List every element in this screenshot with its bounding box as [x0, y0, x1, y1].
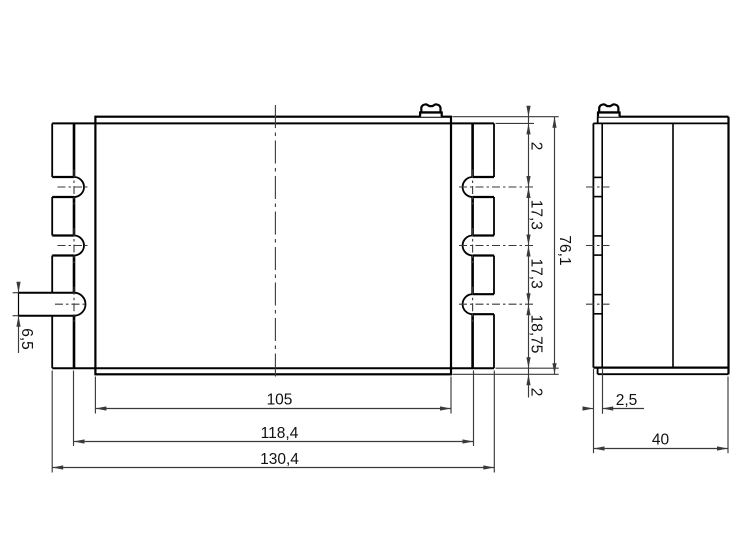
svg-text:118,4: 118,4	[261, 425, 299, 442]
svg-text:2: 2	[528, 388, 545, 397]
svg-text:18,75: 18,75	[528, 315, 545, 354]
svg-text:40: 40	[652, 431, 670, 448]
svg-text:130,4: 130,4	[260, 451, 299, 468]
svg-text:76,1: 76,1	[556, 235, 573, 265]
svg-text:17,3: 17,3	[528, 259, 545, 289]
svg-text:105: 105	[267, 392, 293, 409]
svg-text:2,5: 2,5	[616, 392, 638, 409]
svg-text:17,3: 17,3	[528, 200, 545, 230]
svg-text:6,5: 6,5	[18, 328, 35, 350]
svg-text:2: 2	[528, 142, 545, 151]
